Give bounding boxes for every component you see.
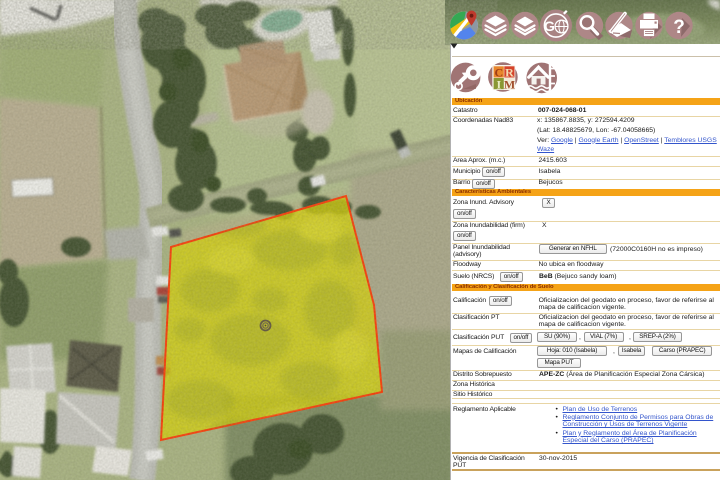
svg-text:I: I [496,78,501,92]
svg-text:M: M [504,78,515,92]
svg-text:?: ? [673,17,685,38]
svg-text:G: G [544,18,555,34]
